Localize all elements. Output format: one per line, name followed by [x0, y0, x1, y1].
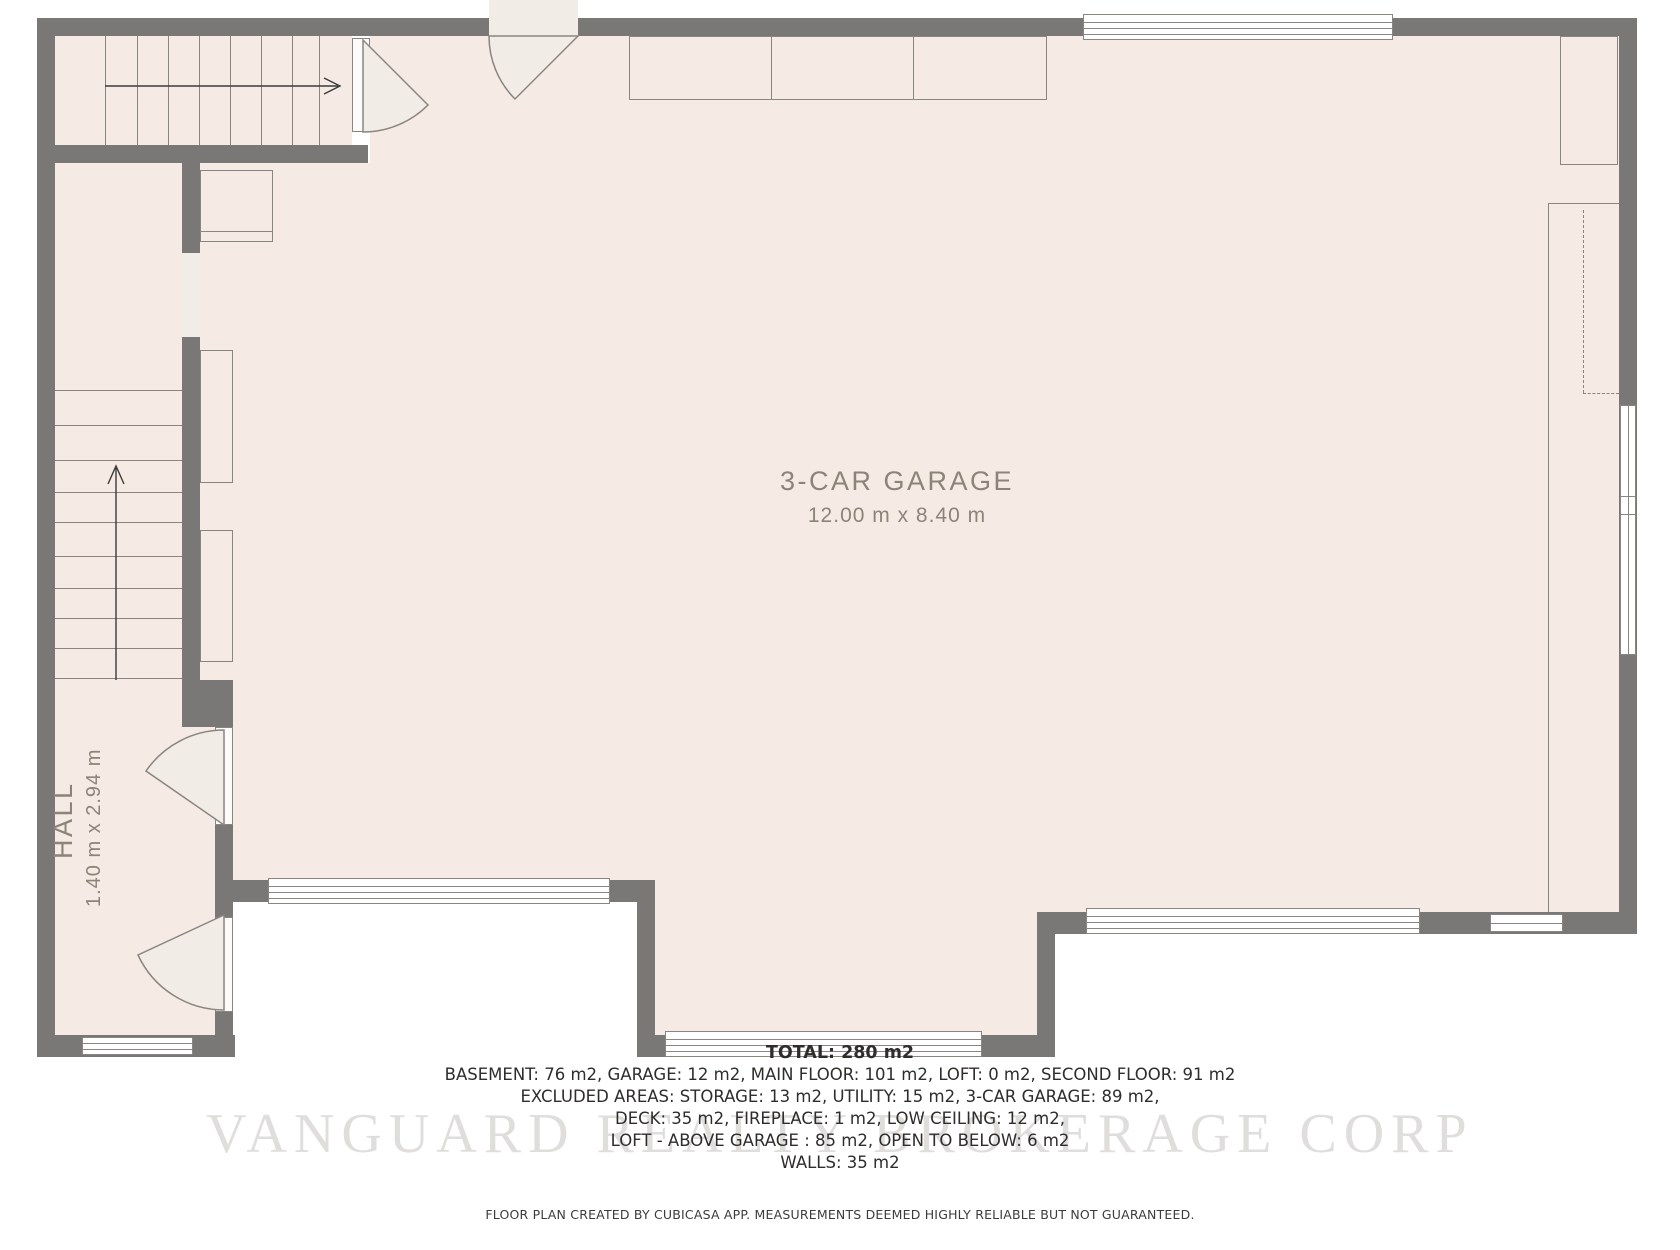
counter-top	[629, 36, 1047, 100]
stair-tread	[55, 425, 182, 426]
stair-direction-arrow-upper	[100, 76, 350, 96]
wall-divider-mid	[182, 337, 200, 680]
floor-plan: VANGUARD REALTY BROKERAGE CORP	[0, 0, 1680, 1250]
window-top	[1083, 14, 1393, 40]
hall-door-upper-swing	[130, 720, 240, 830]
total-area: TOTAL: 280 m2	[0, 1042, 1680, 1064]
wall-hall-right-a	[215, 825, 233, 917]
stair-tread	[55, 460, 182, 461]
hall-dimensions: 1.40 m x 2.94 m	[83, 695, 106, 960]
wall-stair-bottom	[37, 145, 368, 163]
dashed-ceiling-line-h	[1583, 393, 1619, 394]
hall-door-lower-swing	[130, 910, 240, 1020]
garage-label: 3-CAR GARAGE 12.00 m x 8.40 m	[597, 466, 1197, 528]
summary-line: EXCLUDED AREAS: STORAGE: 13 m2, UTILITY:…	[0, 1086, 1680, 1108]
wall-cabinet-2	[200, 530, 233, 662]
summary-line: DECK: 35 m2, FIREPLACE: 1 m2, LOW CEILIN…	[0, 1108, 1680, 1130]
stair-direction-arrow-lower	[106, 462, 126, 687]
cased-opening	[182, 253, 200, 337]
garage-name: 3-CAR GARAGE	[597, 466, 1197, 497]
summary-line: WALLS: 35 m2	[0, 1152, 1680, 1174]
wall-top	[37, 18, 1637, 36]
low-ceiling-boundary-left	[1548, 203, 1549, 912]
disclaimer: FLOOR PLAN CREATED BY CUBICASA APP. MEAS…	[0, 1207, 1680, 1222]
summary-line: LOFT - ABOVE GARAGE : 85 m2, OPEN TO BEL…	[0, 1130, 1680, 1152]
low-ceiling-boundary-top	[1548, 203, 1619, 204]
summary-line: BASEMENT: 76 m2, GARAGE: 12 m2, MAIN FLO…	[0, 1064, 1680, 1086]
wall-cabinet-1	[200, 350, 233, 483]
window-right-wall	[1620, 405, 1636, 655]
closet-under-stairs	[200, 170, 273, 242]
entry-door-swing	[480, 30, 590, 110]
window-left-bottom	[268, 878, 610, 904]
wall-divider-upper	[182, 163, 200, 253]
garage-dimensions: 12.00 m x 8.40 m	[597, 504, 1197, 528]
hall-name: HALL	[48, 688, 79, 953]
hall-label: HALL 1.40 m x 2.94 m	[48, 688, 124, 953]
cabinet-top-right	[1560, 36, 1618, 165]
area-summary: TOTAL: 280 m2 BASEMENT: 76 m2, GARAGE: 1…	[0, 1042, 1680, 1174]
stair-tread	[55, 390, 182, 391]
garage-door-right	[1086, 908, 1420, 934]
stair-door-swing	[350, 30, 470, 145]
window-bottom-right	[1490, 914, 1563, 932]
wall-step-left	[637, 880, 655, 1057]
dashed-ceiling-line-v	[1583, 210, 1584, 393]
